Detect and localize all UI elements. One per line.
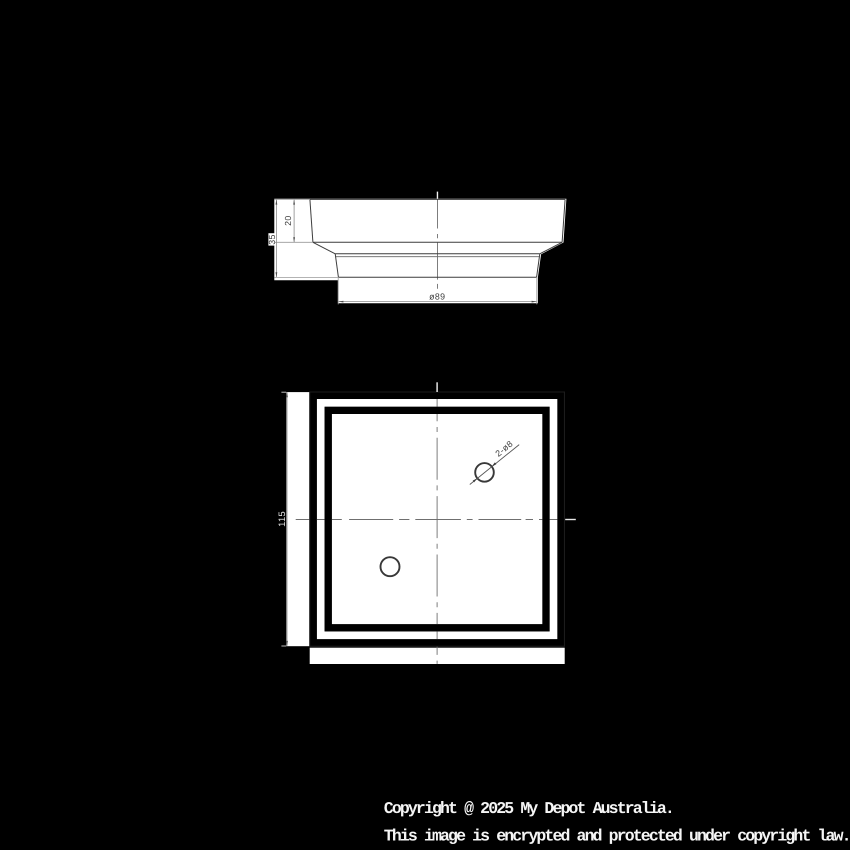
- svg-text:115: 115: [277, 511, 287, 527]
- svg-text:35: 35: [267, 234, 277, 245]
- svg-text:20: 20: [283, 215, 293, 226]
- svg-text:This image is encrypted and pr: This image is encrypted and protected un…: [384, 826, 850, 845]
- svg-text:ø89: ø89: [429, 291, 445, 301]
- svg-text:Copyright @ 2025 My Depot Aust: Copyright @ 2025 My Depot Australia.: [384, 799, 673, 818]
